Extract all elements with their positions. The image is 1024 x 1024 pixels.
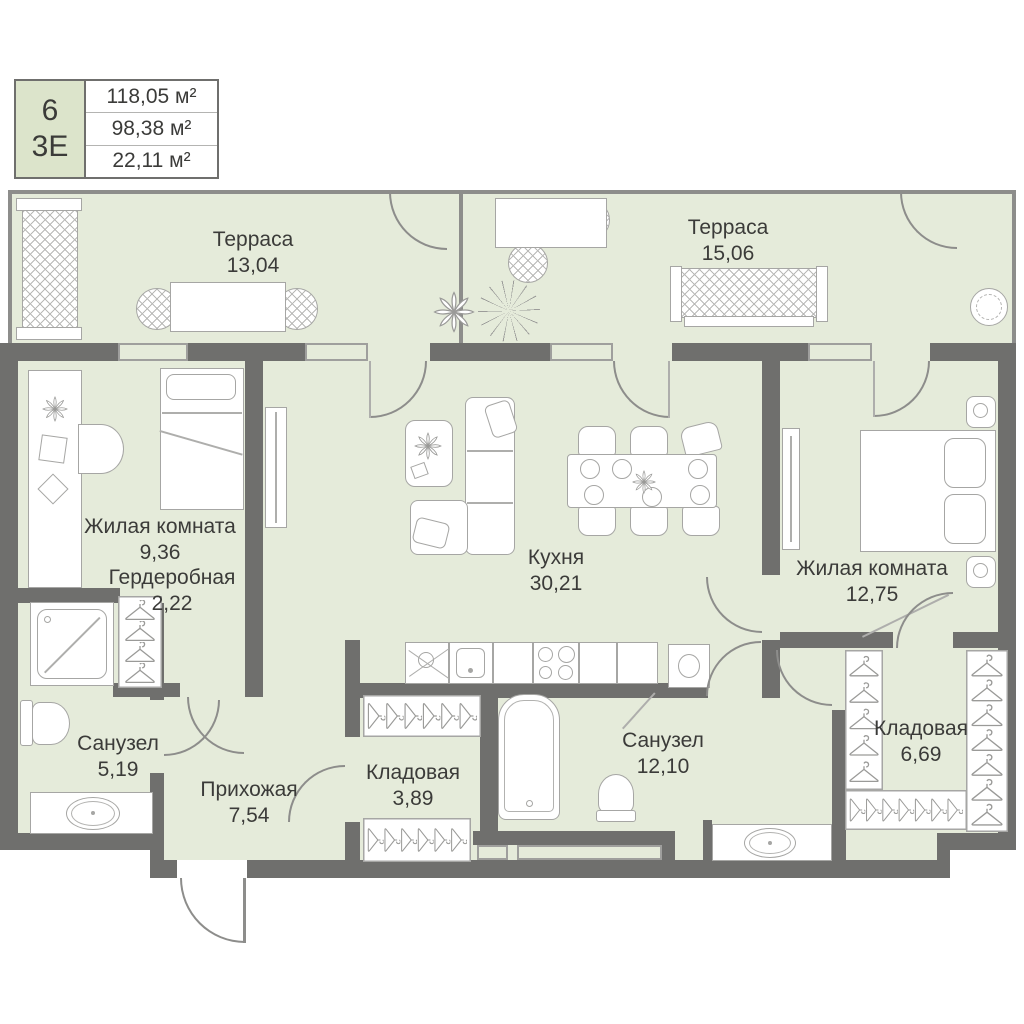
apartment-info-box: 6 3Е 118,05 м² 98,38 м² 22,11 м² (14, 79, 219, 179)
door-leaf (873, 361, 875, 417)
floor-plan: 6 3Е 118,05 м² 98,38 м² 22,11 м² (0, 0, 1024, 1024)
wall-niche (473, 831, 673, 845)
wall (188, 343, 305, 361)
bathtub-inner (504, 700, 554, 812)
hanger-rack (845, 790, 967, 830)
terrace-chair (508, 243, 548, 283)
wall (762, 640, 780, 698)
pillow (166, 374, 236, 400)
sofa-cushion-line (467, 502, 513, 504)
room-name: Жилая комната (796, 556, 948, 582)
lamp (973, 403, 988, 418)
terrace-table (495, 198, 607, 248)
room-name: Кладовая (874, 716, 968, 742)
wall-bottom-bath (0, 833, 163, 850)
terrace-railing-top (8, 190, 1016, 194)
sofa-cushion-line (467, 450, 513, 452)
plant-icon (433, 291, 475, 333)
room-area: 5,19 (98, 757, 139, 783)
burner (558, 646, 575, 663)
toilet-tank (596, 810, 636, 822)
sun-lounger (22, 200, 78, 338)
room-name: Санузел (77, 731, 159, 757)
apartment-layout-code: 3Е (32, 130, 69, 164)
window (517, 845, 662, 860)
room-label-terrace-left: Терраса 13,04 (213, 227, 294, 279)
terrace-bench (676, 268, 822, 318)
door-gap (872, 343, 930, 361)
wall (430, 343, 550, 361)
plate (690, 485, 710, 505)
bench-armrest (670, 266, 682, 322)
counter (579, 642, 617, 684)
wall-closet-left (832, 710, 846, 863)
wall-bottom-step (948, 833, 1016, 850)
room-label-living-small: Жилая комната 9,36 (84, 514, 236, 566)
wall-bottom-step (937, 833, 950, 878)
window (305, 343, 368, 361)
lounger-headrest (16, 198, 82, 211)
plate (612, 459, 632, 479)
door-gap (613, 343, 672, 361)
bench-seat (684, 316, 814, 327)
window (118, 343, 188, 361)
dining-chair (630, 426, 668, 456)
lounger-footrest (16, 327, 82, 340)
room-area: 6,69 (901, 742, 942, 768)
bed-line (162, 412, 242, 414)
monitor (38, 434, 67, 463)
toilet (32, 702, 70, 745)
room-name: Санузел (622, 728, 704, 754)
room-name: Прихожая (200, 777, 297, 803)
fridge (617, 642, 658, 684)
plant-icon (478, 280, 540, 342)
dining-chair (578, 506, 616, 536)
room-name: Кладовая (366, 760, 460, 786)
room-label-kitchen: Кухня 30,21 (528, 545, 584, 597)
desk-chair (78, 424, 124, 474)
plant-icon (414, 432, 442, 460)
lamp (973, 563, 988, 578)
wall-room-kitchen (245, 361, 263, 697)
room-area: 13,04 (227, 253, 280, 279)
terrace-table (170, 282, 286, 332)
apartment-areas-cell: 118,05 м² 98,38 м² 22,11 м² (86, 81, 217, 177)
dining-chair (630, 506, 668, 536)
potted-plant-icon (970, 288, 1008, 326)
door-leaf (668, 361, 670, 418)
sink-drain (91, 811, 95, 815)
bench-armrest (816, 266, 828, 322)
cabinet-line (275, 412, 277, 523)
hood-circle (418, 652, 434, 668)
room-label-bath-small: Санузел 5,19 (77, 731, 159, 783)
hanger-rack (363, 695, 481, 737)
wall-kitchen-bedroom (762, 361, 780, 575)
room-name: Терраса (688, 215, 769, 241)
wall-niche (703, 820, 712, 863)
window (477, 845, 508, 860)
wall-niche (662, 831, 675, 878)
pillow (944, 494, 986, 544)
tv-line (790, 436, 792, 542)
room-label-bath-big: Санузел 12,10 (622, 728, 704, 780)
burner (539, 666, 552, 679)
room-name: Терраса (213, 227, 294, 253)
plant-icon (42, 396, 68, 422)
pillow (944, 438, 986, 488)
burner (538, 647, 553, 662)
room-name: Жилая комната (84, 514, 236, 540)
window (808, 343, 872, 361)
hanger-rack (966, 650, 1008, 832)
total-area: 118,05 м² (86, 81, 217, 113)
wall (18, 588, 120, 603)
room-label-storage-big: Кладовая 6,69 (874, 716, 968, 768)
sink-drain (768, 841, 772, 845)
room-name: Гердеробная (109, 565, 236, 591)
dining-chair (578, 426, 616, 456)
plate (688, 459, 708, 479)
terrace-area: 22,11 м² (86, 146, 217, 177)
plant-icon (632, 470, 656, 494)
faucet (526, 800, 533, 807)
dining-chair (682, 506, 720, 536)
plate (580, 459, 600, 479)
living-area: 98,38 м² (86, 113, 217, 145)
room-label-hallway: Прихожая 7,54 (200, 777, 297, 829)
exterior-mask (948, 850, 1016, 878)
wall-bedroom-bottom (780, 632, 893, 648)
wall-left-exterior (0, 343, 18, 850)
apartment-number: 6 (42, 94, 59, 128)
shower-drain (44, 616, 51, 623)
apartment-number-cell: 6 3Е (16, 81, 86, 177)
wall (345, 822, 360, 878)
door-leaf (369, 361, 371, 418)
hanger-rack (363, 818, 471, 862)
wall-bedroom-bottom (953, 632, 1016, 648)
room-area: 9,36 (140, 540, 181, 566)
room-area: 12,75 (846, 582, 899, 608)
sink-basin (456, 648, 485, 678)
terrace-railing-right (1012, 190, 1016, 343)
room-area: 12,10 (637, 754, 690, 780)
exterior-mask (0, 850, 150, 878)
entry-door-leaf (243, 878, 246, 943)
terrace-railing-left (8, 190, 12, 343)
counter (493, 642, 533, 684)
plate (584, 485, 604, 505)
door-gap (368, 343, 430, 361)
room-label-terrace-right: Терраса 15,06 (688, 215, 769, 267)
room-area: 2,22 (152, 591, 193, 617)
toilet (598, 774, 634, 814)
room-label-storage-small: Кладовая 3,89 (366, 760, 460, 812)
room-area: 15,06 (702, 241, 755, 267)
wall (672, 343, 808, 361)
room-area: 7,54 (229, 803, 270, 829)
room-name: Кухня (528, 545, 584, 571)
room-area: 3,89 (393, 786, 434, 812)
room-area: 30,21 (530, 571, 583, 597)
room-label-living-big: Жилая комната 12,75 (796, 556, 948, 608)
sink-drain (468, 668, 473, 673)
window (550, 343, 613, 361)
washing-machine (668, 644, 710, 688)
room-label-wardrobe: Гердеробная 2,22 (109, 565, 236, 617)
burner (558, 665, 573, 680)
entry-door-arc (180, 878, 245, 943)
